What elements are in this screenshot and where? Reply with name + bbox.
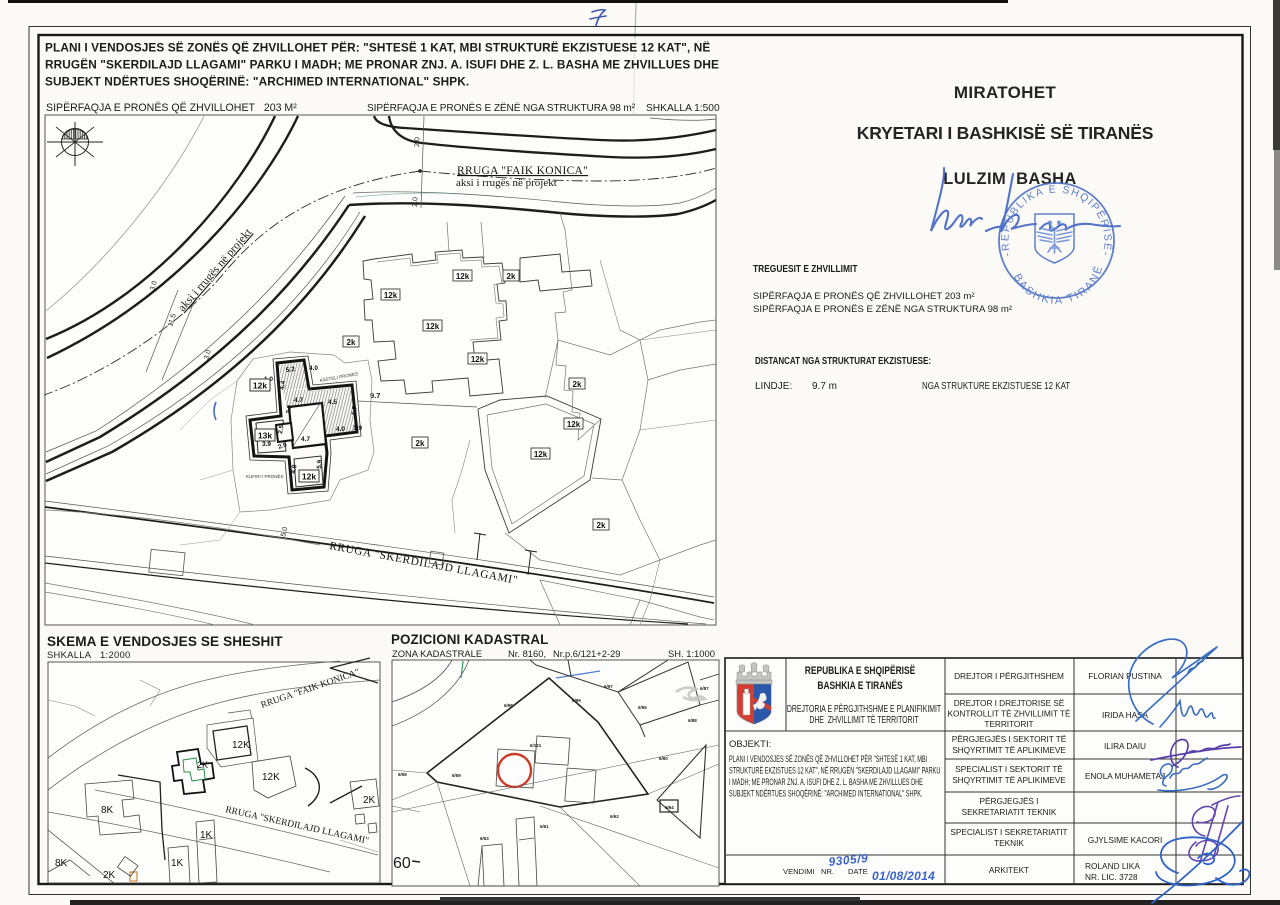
svg-text:DISTANCAT NGA STRUKTURAT EKZIS: DISTANCAT NGA STRUKTURAT EKZISTUESE: (755, 355, 931, 366)
svg-text:01/08/2014: 01/08/2014 (872, 869, 935, 883)
svg-text:SHQYRTIMIT TË APLIKIMEVE: SHQYRTIMIT TË APLIKIMEVE (952, 775, 1066, 785)
svg-text:ILIRA DAIU: ILIRA DAIU (1104, 741, 1146, 751)
svg-text:6/62: 6/62 (610, 814, 619, 819)
svg-text:DREJTOR I PËRGJITHSHEM: DREJTOR I PËRGJITHSHEM (954, 671, 1064, 681)
svg-text:SEKRETARIATIT TEKNIK: SEKRETARIATIT TEKNIK (962, 807, 1057, 817)
svg-text:NGA STRUKTURE EKZISTUESE 12 KA: NGA STRUKTURE EKZISTUESE 12 KAT (922, 380, 1071, 391)
svg-text:6/98: 6/98 (504, 703, 513, 708)
svg-text:6/99: 6/99 (572, 698, 581, 703)
svg-text:2K: 2K (363, 795, 376, 806)
svg-text:ZONA KADASTRALE: ZONA KADASTRALE (392, 648, 482, 659)
svg-text:MIRATOHET: MIRATOHET (954, 83, 1056, 102)
svg-text:Nr.p.6/121+2-29: Nr.p.6/121+2-29 (553, 648, 621, 659)
svg-text:FLORIAN PUSTINA: FLORIAN PUSTINA (1088, 671, 1162, 681)
svg-text:1.9: 1.9 (353, 425, 362, 432)
svg-text:12k: 12k (456, 272, 470, 281)
svg-text:4.0: 4.0 (336, 426, 345, 433)
svg-text:5.9: 5.9 (316, 459, 324, 469)
svg-text:6/59: 6/59 (452, 773, 461, 778)
svg-text:12k: 12k (567, 420, 581, 429)
svg-text:KRYETARI I BASHKISË SË TIRANËS: KRYETARI I BASHKISË SË TIRANËS (857, 123, 1153, 143)
svg-text:6/64: 6/64 (665, 805, 674, 810)
svg-text:12K: 12K (232, 740, 250, 751)
svg-text:3.9: 3.9 (262, 441, 271, 448)
svg-text:4.0: 4.0 (309, 365, 318, 372)
svg-text:2k: 2k (507, 272, 516, 281)
svg-text:SHQYRTIMIT TË APLIKIMEVE: SHQYRTIMIT TË APLIKIMEVE (952, 745, 1066, 755)
svg-text:OBJEKTI:: OBJEKTI: (729, 739, 771, 750)
svg-text:2k: 2k (347, 338, 356, 347)
svg-text:6/58: 6/58 (398, 772, 407, 777)
svg-text:POZICIONI KADASTRAL: POZICIONI KADASTRAL (391, 632, 548, 647)
svg-text:SKEMA E VENDOSJES SE SHESHIT: SKEMA E VENDOSJES SE SHESHIT (47, 634, 283, 649)
svg-text:6/95: 6/95 (638, 705, 647, 710)
svg-text:DATE: DATE (848, 867, 868, 876)
svg-text:KONTROLLIT TË ZHVILLIMIT TË: KONTROLLIT TË ZHVILLIMIT TË (948, 709, 1071, 719)
svg-text:12k: 12k (471, 355, 485, 364)
svg-text:6/97: 6/97 (604, 684, 613, 689)
svg-text:Nr. 8160,: Nr. 8160, (508, 648, 546, 659)
svg-text:TEKNIK: TEKNIK (994, 838, 1024, 848)
svg-text:SH. 1:1000: SH. 1:1000 (668, 648, 715, 659)
svg-text:KUFIRI I PRONËS: KUFIRI I PRONËS (246, 473, 284, 479)
svg-text:ENOLA MUHAMETAJ: ENOLA MUHAMETAJ (1085, 771, 1165, 781)
svg-text:PËRGJEGJËS I SEKTORIT TË: PËRGJEGJËS I SEKTORIT TË (952, 734, 1067, 744)
svg-text:2K: 2K (197, 760, 208, 770)
svg-text:ARKITEKT: ARKITEKT (989, 865, 1029, 875)
svg-text:6/87: 6/87 (700, 686, 709, 691)
svg-text:6/63: 6/63 (480, 836, 489, 841)
svg-text:12k: 12k (302, 472, 316, 482)
svg-text:SHKALLA 1:2000: SHKALLA 1:2000 (47, 649, 131, 660)
svg-text:2k: 2k (573, 380, 582, 389)
svg-text:RRUGA "FAIK KONICA": RRUGA "FAIK KONICA" (457, 165, 588, 177)
svg-text:RRUGËN "SKERDILAJD LLAGAMI" P: RRUGËN "SKERDILAJD LLAGAMI" PARKU I MADH… (45, 58, 719, 72)
svg-text:GJYLSIME KACORI: GJYLSIME KACORI (1088, 835, 1162, 845)
svg-text:12K: 12K (262, 772, 280, 783)
svg-text:4.4: 4.4 (279, 380, 287, 390)
svg-text:2k: 2k (597, 521, 606, 530)
svg-text:5.7: 5.7 (351, 405, 359, 415)
svg-text:12k: 12k (534, 450, 548, 459)
svg-text:6/121: 6/121 (530, 743, 542, 748)
svg-text:2.0: 2.0 (414, 137, 421, 147)
svg-text:12k: 12k (384, 291, 398, 300)
svg-text:13k: 13k (258, 431, 272, 441)
svg-text:6/88: 6/88 (688, 718, 697, 723)
svg-text:SPECIALIST I SEKTORIT TË: SPECIALIST I SEKTORIT TË (955, 764, 1063, 774)
svg-text:9.7 m: 9.7 m (812, 381, 837, 392)
svg-text:DHE ZHVILLIMIT TË TERRITORIT: DHE ZHVILLIMIT TË TERRITORIT (809, 714, 919, 726)
svg-text:STRUKTURË EKZISTUES 12 KAT", N: STRUKTURË EKZISTUES 12 KAT", NË RRUGËN "… (729, 765, 941, 776)
svg-text:SPECIALIST I SEKRETARIATIT: SPECIALIST I SEKRETARIATIT (950, 827, 1067, 837)
svg-text:SUBJEKT NDËRTUES SHOQËRINË: "A: SUBJEKT NDËRTUES SHOQËRINË: "ARCHIMED IN… (45, 75, 469, 89)
svg-text:6/61: 6/61 (540, 824, 549, 829)
svg-text:4.7: 4.7 (294, 397, 303, 404)
svg-text:1K: 1K (200, 830, 213, 841)
svg-text:6/60: 6/60 (659, 756, 668, 761)
svg-text:5.2: 5.2 (285, 366, 295, 374)
svg-text:12k: 12k (253, 381, 267, 391)
svg-text:8K: 8K (101, 805, 114, 816)
svg-text:PLANI I VENDOSJES SË ZONËS QË: PLANI I VENDOSJES SË ZONËS QË ZHVILLOHET… (729, 753, 927, 764)
svg-text:12k: 12k (426, 322, 440, 331)
svg-text:SIPËRFAQJA E PRONËS QË ZHVILLO: SIPËRFAQJA E PRONËS QË ZHVILLOHET 203 m² (753, 291, 975, 302)
svg-text:SHKALLA 1:500: SHKALLA 1:500 (646, 103, 720, 114)
svg-text:ROLAND LIKA: ROLAND LIKA (1085, 861, 1140, 871)
svg-text:LINDJE:: LINDJE: (755, 381, 792, 392)
svg-text:1K: 1K (171, 858, 184, 869)
svg-text:2k: 2k (416, 439, 425, 448)
svg-text:SUBJEKT NDËRTUES SHOQËRINË: "A: SUBJEKT NDËRTUES SHOQËRINË: "ARCHIMED IN… (729, 788, 923, 799)
svg-text:PLANI I VENDOSJES SË ZONËS QË: PLANI I VENDOSJES SË ZONËS QË ZHVILLOHET… (45, 41, 710, 55)
svg-text:BASHKIA E TIRANËS: BASHKIA E TIRANËS (817, 680, 903, 692)
svg-text:60: 60 (393, 855, 411, 872)
svg-text:SIPËRFAQJA E PRONËS E ZËNË NGA: SIPËRFAQJA E PRONËS E ZËNË NGA STRUKTURA… (367, 102, 636, 114)
svg-text:I MADH; ME PRONAR ZNJ. A. ISUF: I MADH; ME PRONAR ZNJ. A. ISUFI DHE Z. L… (729, 776, 923, 787)
svg-text:PËRGJEGJËS I: PËRGJEGJËS I (980, 796, 1039, 806)
svg-text:aksi i rrugës në projekt: aksi i rrugës në projekt (456, 177, 557, 189)
svg-text:SIPËRFAQJA E PRONËS E ZËNË NGA: SIPËRFAQJA E PRONËS E ZËNË NGA STRUKTURA… (753, 304, 1013, 315)
svg-text:VENDIMI: VENDIMI (783, 867, 815, 876)
svg-text:TERRITORIT: TERRITORIT (984, 719, 1033, 729)
svg-text:REPUBLIKA E SHQIPËRISË: REPUBLIKA E SHQIPËRISË (805, 665, 916, 677)
svg-text:4.5: 4.5 (328, 399, 337, 406)
svg-text:NR. LIC. 3728: NR. LIC. 3728 (1085, 872, 1138, 882)
svg-text:2.0: 2.0 (412, 197, 419, 207)
svg-text:4.7: 4.7 (301, 436, 310, 443)
svg-text:DREJTOR I DREJTORISE SË: DREJTOR I DREJTORISE SË (954, 698, 1065, 708)
svg-text:TREGUESIT E ZHVILLIMIT: TREGUESIT E ZHVILLIMIT (753, 263, 858, 275)
svg-text:SIPËRFAQJA E PRONËS QË ZHVILLO: SIPËRFAQJA E PRONËS QË ZHVILLOHET 203 M² (46, 102, 297, 114)
